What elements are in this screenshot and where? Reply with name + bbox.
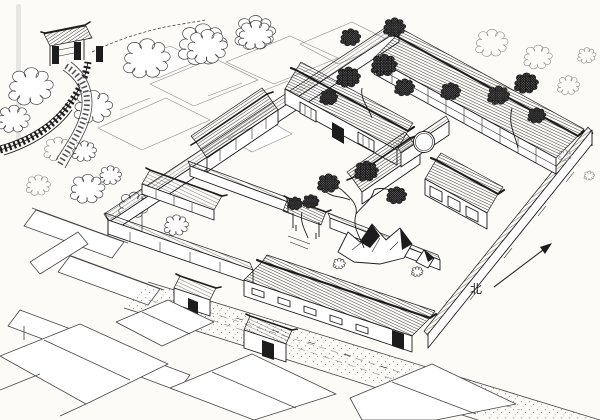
upper-left-trees <box>0 16 276 196</box>
north-label: 北 <box>470 282 482 296</box>
gate-pillar <box>52 46 59 64</box>
drawing-canvas: 北 <box>0 0 600 420</box>
east-hall <box>425 153 504 229</box>
arrow-head <box>540 243 552 254</box>
siheyuan-illustration: 北 <box>0 0 600 420</box>
gate-pillar <box>74 42 81 60</box>
moon-gate <box>414 132 435 153</box>
stone-tablet <box>96 46 103 62</box>
garden-gate <box>41 22 103 66</box>
